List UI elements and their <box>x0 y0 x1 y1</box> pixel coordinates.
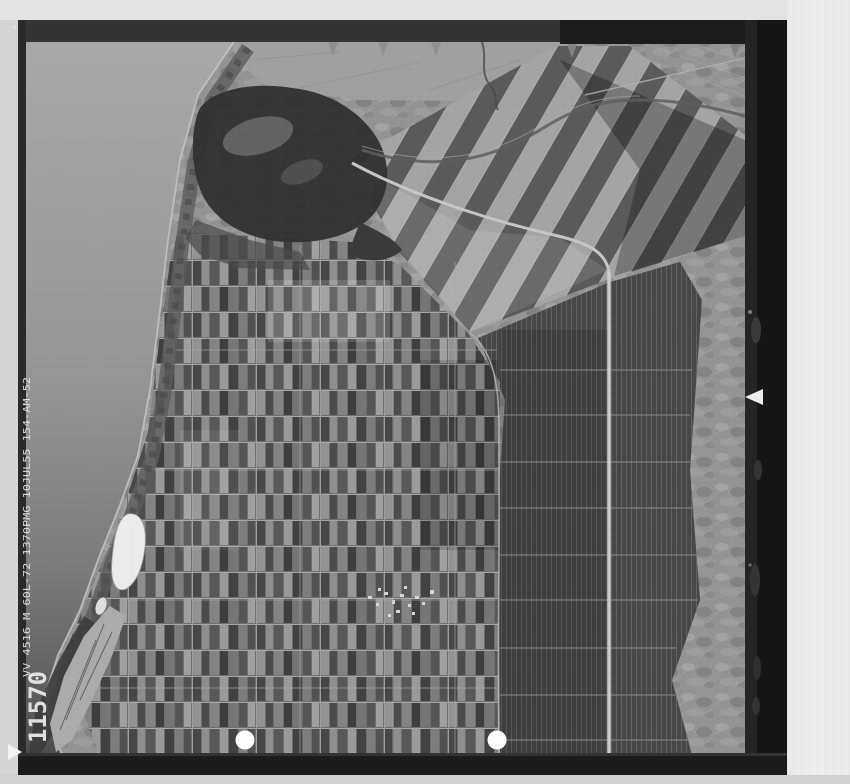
margin-top <box>0 0 850 20</box>
margin-left <box>0 20 18 775</box>
punch-hole-right <box>488 731 507 750</box>
film-frame-top-dark <box>560 20 745 44</box>
edge-blob <box>754 460 762 480</box>
aerial-photo-scan: VV 4516 M 60L-72 1370PMG 10JUL55 154-AM-… <box>0 0 850 784</box>
edge-annotation-text: VV 4516 M 60L-72 1370PMG 10JUL55 154-AM-… <box>22 377 33 677</box>
edge-blob <box>752 697 760 715</box>
aerial-photo-print: VV 4516 M 60L-72 1370PMG 10JUL55 154-AM-… <box>0 0 850 784</box>
photo-imagery <box>24 40 745 755</box>
edge-speck <box>748 563 751 566</box>
edge-blob <box>751 317 761 343</box>
corner-speck-mark <box>13 25 16 28</box>
edge-blob <box>753 656 761 680</box>
edge-blob <box>750 564 760 596</box>
margin-bottom <box>0 775 850 784</box>
film-frame-bottom <box>18 753 787 775</box>
margin-right-banding <box>787 0 850 784</box>
film-grain <box>24 40 745 755</box>
frame-number-text: 11570 <box>24 671 52 743</box>
punch-hole-left <box>236 731 255 750</box>
film-frame-bottom-lip <box>18 753 787 756</box>
edge-speck <box>748 310 752 314</box>
